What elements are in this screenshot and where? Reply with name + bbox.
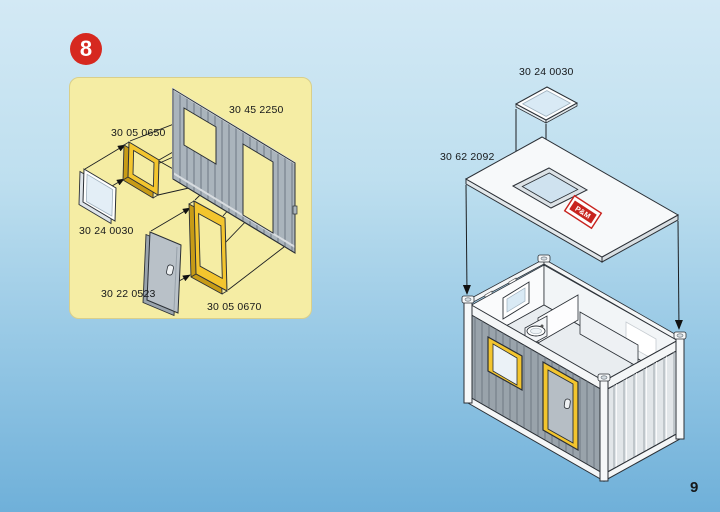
part-label-door: 30 22 0523 (101, 288, 156, 300)
door-drawing (143, 232, 181, 316)
window-pane-drawing (79, 169, 116, 224)
wall-hinge-tab (293, 206, 297, 214)
assembly-diagram: P&M (430, 60, 720, 490)
exploded-parts-panel: 30 45 2250 30 05 0650 30 24 0030 30 22 0… (69, 77, 312, 319)
door-handle (564, 399, 571, 409)
assembly-area: P&M (430, 60, 720, 490)
part-label-window-pane: 30 24 0030 (79, 225, 134, 237)
skylight-pane-drawing (516, 87, 577, 123)
part-label-roof-panel: 30 62 2092 (440, 151, 495, 163)
part-label-wall-panel: 30 45 2250 (229, 104, 284, 116)
step-number: 8 (80, 38, 92, 60)
step-number-badge: 8 (70, 33, 102, 65)
roof-panel-drawing: P&M (466, 137, 678, 262)
window-frame-drawing (123, 142, 159, 198)
page-number: 9 (690, 479, 698, 496)
door-frame-drawing (189, 201, 227, 294)
container-drawing (462, 255, 686, 481)
part-label-window-frame: 30 05 0650 (111, 127, 166, 139)
part-label-door-frame: 30 05 0670 (207, 301, 262, 313)
part-label-skylight-pane: 30 24 0030 (519, 66, 574, 78)
manual-page: 8 (0, 0, 720, 512)
